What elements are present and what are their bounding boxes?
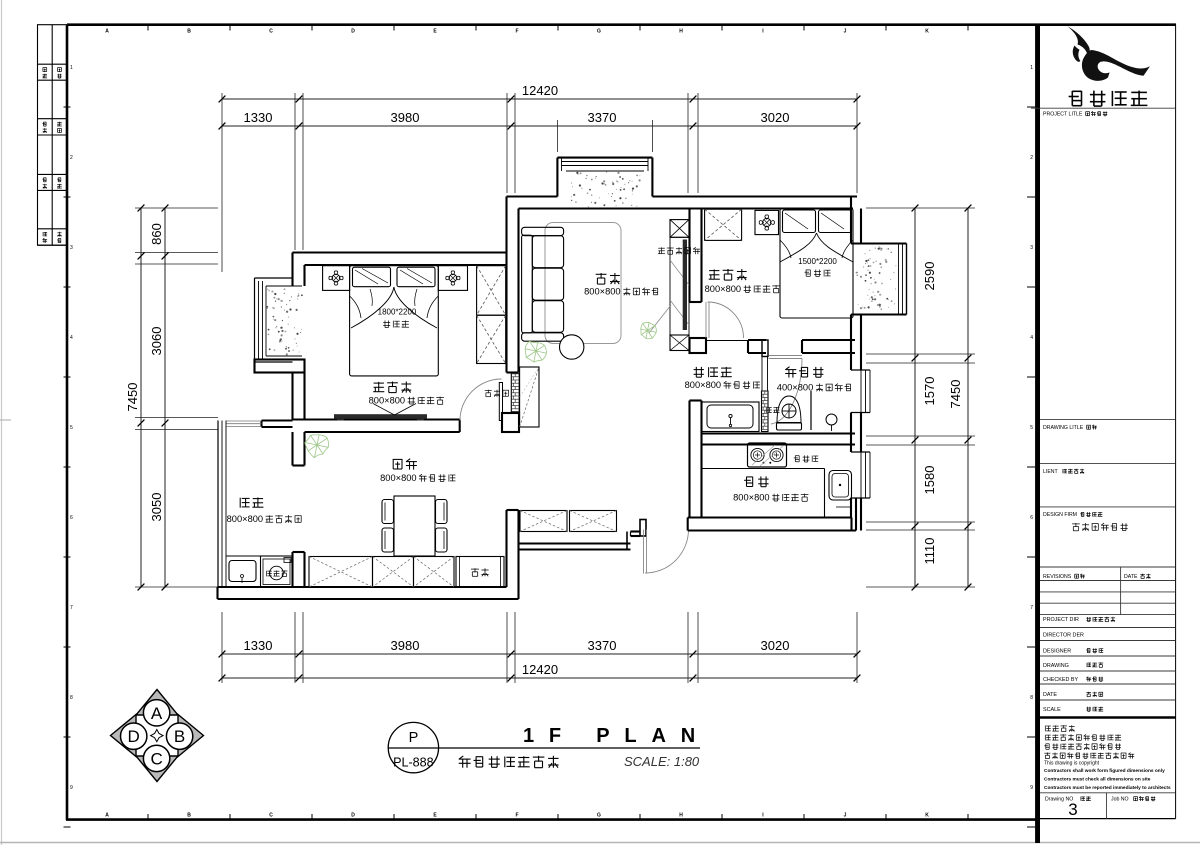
svg-text:5: 5 bbox=[70, 425, 73, 431]
svg-text:PL-888: PL-888 bbox=[393, 756, 434, 770]
svg-text:C: C bbox=[150, 749, 162, 768]
svg-text:3980: 3980 bbox=[391, 638, 420, 653]
svg-text:800×800: 800×800 bbox=[705, 284, 741, 294]
svg-text:K: K bbox=[925, 29, 929, 35]
svg-text:2: 2 bbox=[70, 155, 73, 161]
svg-text:800×800: 800×800 bbox=[369, 396, 405, 406]
svg-text:DATE: DATE bbox=[1124, 574, 1138, 580]
svg-text:D: D bbox=[351, 813, 355, 819]
svg-text:A: A bbox=[105, 29, 109, 35]
svg-text:9: 9 bbox=[70, 785, 73, 791]
svg-text:1110: 1110 bbox=[922, 538, 937, 565]
svg-text:1580: 1580 bbox=[922, 466, 937, 495]
svg-text:F: F bbox=[515, 29, 518, 35]
svg-text:1330: 1330 bbox=[244, 638, 273, 653]
svg-text:9: 9 bbox=[1030, 785, 1033, 791]
svg-text:SCALE: 1:80: SCALE: 1:80 bbox=[624, 754, 700, 769]
svg-text:A: A bbox=[105, 813, 109, 819]
svg-text:A: A bbox=[151, 704, 163, 723]
svg-text:2: 2 bbox=[1030, 155, 1033, 161]
svg-text:8: 8 bbox=[1030, 695, 1033, 701]
svg-text:3: 3 bbox=[1030, 245, 1033, 251]
svg-text:Contractors must check all dim: Contractors must check all dimensions on… bbox=[1044, 777, 1151, 783]
svg-text:3: 3 bbox=[1068, 800, 1077, 819]
svg-text:4: 4 bbox=[1030, 335, 1033, 341]
svg-text:3050: 3050 bbox=[149, 493, 164, 522]
svg-text:7450: 7450 bbox=[125, 383, 140, 412]
svg-text:1F PLAN: 1F PLAN bbox=[523, 725, 710, 747]
svg-text:DRAWING LITLE: DRAWING LITLE bbox=[1043, 425, 1084, 431]
svg-text:D: D bbox=[128, 727, 140, 746]
svg-text:DESIGN FIRM: DESIGN FIRM bbox=[1043, 512, 1077, 518]
svg-text:C: C bbox=[269, 813, 273, 819]
svg-text:3980: 3980 bbox=[391, 110, 420, 125]
svg-text:1800*2200: 1800*2200 bbox=[378, 308, 417, 317]
svg-text:1500*2200: 1500*2200 bbox=[798, 257, 837, 266]
svg-text:G: G bbox=[597, 29, 601, 35]
svg-text:3020: 3020 bbox=[761, 638, 790, 653]
svg-text:800×800: 800×800 bbox=[685, 380, 721, 390]
svg-text:2590: 2590 bbox=[922, 262, 937, 291]
svg-text:800×800: 800×800 bbox=[584, 287, 620, 297]
svg-text:DRAWING: DRAWING bbox=[1043, 663, 1069, 669]
svg-text:B: B bbox=[174, 727, 185, 746]
svg-text:K: K bbox=[925, 813, 929, 819]
svg-text:7: 7 bbox=[1030, 605, 1033, 611]
svg-text:12420: 12420 bbox=[522, 83, 558, 98]
svg-text:REVISIONS: REVISIONS bbox=[1043, 574, 1072, 580]
svg-text:SCALE: SCALE bbox=[1043, 707, 1061, 713]
svg-text:F: F bbox=[515, 813, 518, 819]
svg-text:C: C bbox=[269, 29, 273, 35]
svg-text:400×800: 400×800 bbox=[777, 383, 813, 393]
svg-text:J: J bbox=[844, 29, 847, 35]
svg-text:1: 1 bbox=[70, 65, 73, 71]
svg-text:Contractors shall work form fi: Contractors shall work form figured dime… bbox=[1044, 768, 1165, 774]
svg-text:4: 4 bbox=[70, 335, 73, 341]
svg-text:H: H bbox=[679, 29, 683, 35]
svg-text:PROJECT LITLE: PROJECT LITLE bbox=[1043, 112, 1083, 118]
svg-text:G: G bbox=[597, 813, 601, 819]
svg-text:B: B bbox=[187, 813, 191, 819]
svg-text:1570: 1570 bbox=[922, 377, 937, 406]
svg-text:7: 7 bbox=[70, 605, 73, 611]
svg-text:6: 6 bbox=[1030, 515, 1033, 521]
svg-text:B: B bbox=[187, 29, 191, 35]
svg-text:DESIGNER: DESIGNER bbox=[1043, 649, 1071, 655]
svg-text:H: H bbox=[679, 813, 683, 819]
svg-text:PROJECT DIR: PROJECT DIR bbox=[1043, 617, 1079, 623]
svg-text:7450: 7450 bbox=[948, 380, 963, 409]
svg-text:12420: 12420 bbox=[522, 662, 558, 677]
svg-text:5: 5 bbox=[1030, 425, 1033, 431]
svg-text:1330: 1330 bbox=[244, 110, 273, 125]
svg-text:8: 8 bbox=[70, 695, 73, 701]
svg-text:D: D bbox=[351, 29, 355, 35]
svg-text:6: 6 bbox=[70, 515, 73, 521]
svg-text:DIRECTOR DER: DIRECTOR DER bbox=[1043, 633, 1084, 639]
svg-text:3370: 3370 bbox=[588, 638, 617, 653]
svg-text:860: 860 bbox=[149, 223, 164, 245]
svg-text:3370: 3370 bbox=[588, 110, 617, 125]
svg-text:CHECKED BY: CHECKED BY bbox=[1043, 677, 1078, 683]
svg-text:P: P bbox=[409, 730, 419, 746]
svg-text:Contractors must be reported i: Contractors must be reported immediately… bbox=[1044, 785, 1171, 791]
svg-text:LIENT: LIENT bbox=[1043, 469, 1059, 475]
svg-text:800×800: 800×800 bbox=[733, 493, 769, 503]
svg-text:3020: 3020 bbox=[761, 110, 790, 125]
svg-text:This drawing is copyright: This drawing is copyright bbox=[1044, 761, 1100, 767]
svg-text:J: J bbox=[844, 813, 847, 819]
svg-text:800×800: 800×800 bbox=[227, 514, 263, 524]
svg-text:DATE: DATE bbox=[1043, 692, 1057, 698]
svg-text:Job NO: Job NO bbox=[1111, 797, 1129, 803]
svg-text:1: 1 bbox=[1030, 65, 1033, 71]
svg-text:3: 3 bbox=[70, 245, 73, 251]
svg-text:3060: 3060 bbox=[149, 327, 164, 356]
svg-text:800×800: 800×800 bbox=[380, 473, 416, 483]
